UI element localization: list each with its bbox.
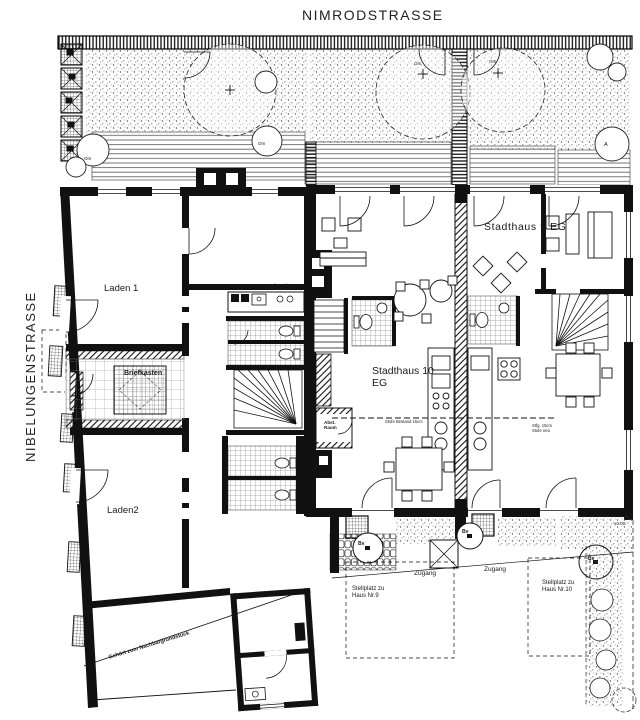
room-label-laden1: Laden 1 — [104, 284, 138, 295]
parking-bay-9 — [346, 562, 454, 658]
garden-porch — [196, 168, 246, 190]
party-wall — [455, 194, 467, 508]
tree-label-bv-3: Bv — [588, 557, 594, 563]
stufe-bestand-label: Stufe Bestand 15cm — [385, 420, 423, 425]
outdoor-label-stellplatz9: Stellplatz zu Haus Nr.9 — [352, 586, 384, 599]
kitchen-st9 — [468, 348, 492, 470]
outdoor-label-zugang-1: Zugang — [414, 570, 436, 577]
wc-block-2 — [222, 436, 304, 514]
tree-label-bv-2: Bv — [462, 530, 468, 536]
x-planter — [430, 540, 458, 568]
unit-label-stadthaus9: Stadthaus 9 EG — [484, 222, 567, 234]
room-label-teekueche: Teeküche — [262, 283, 294, 291]
laden-building — [42, 168, 318, 711]
stufe-detail-label: Stfg. 15cm Stufe neu — [532, 424, 552, 433]
level-marker-label: ±0.00 — [614, 521, 625, 526]
stair-st9 — [552, 294, 608, 350]
outdoor-label-zugang-2: Zugang — [484, 566, 506, 573]
tree-label-om-4: Om — [489, 59, 496, 64]
street-label-nibelungenstrasse: NIBELUNGENSTRASSE — [24, 291, 39, 462]
outdoor-label-stellplatz10: Stellplatz zu Haus Nr.10 — [542, 580, 574, 593]
unit-label-stadthaus10: Stadthaus 10 EG — [372, 366, 434, 390]
stove-st9 — [498, 358, 520, 380]
garden-area — [58, 36, 632, 185]
tree-label-om-2: Om — [258, 141, 265, 146]
tree-label-om-1: Om — [84, 156, 91, 161]
outdoor-area — [330, 514, 636, 712]
stair-st10 — [314, 298, 348, 354]
room-label-abstellraum: Abst. Raum — [324, 420, 337, 430]
mail-corridor — [66, 344, 184, 435]
street-label-nimrodstrasse: NIMRODSTRASSE — [302, 8, 444, 24]
street-hedge — [58, 36, 632, 49]
floor-plan-page: NIMRODSTRASSE NIBELUNGENSTRASSE Laden 1 … — [0, 0, 640, 720]
room-label-laden2: Laden2 — [107, 506, 139, 517]
lower-rooms — [230, 588, 318, 711]
room-label-briefkasten: Briefkasten — [124, 370, 162, 378]
tree-label-a: A — [604, 142, 608, 148]
tree-label-bv-1: Bv — [358, 542, 364, 548]
bathroom-st9 — [468, 296, 520, 346]
parking-bay-10 — [528, 558, 590, 656]
wc-block-1 — [226, 316, 308, 370]
bathroom-st10 — [352, 296, 396, 346]
tree-label-om-3: Om — [414, 61, 421, 66]
laden-stair — [226, 370, 308, 435]
stadthaus-building — [304, 185, 633, 520]
floor-plan-drawing — [0, 0, 640, 720]
